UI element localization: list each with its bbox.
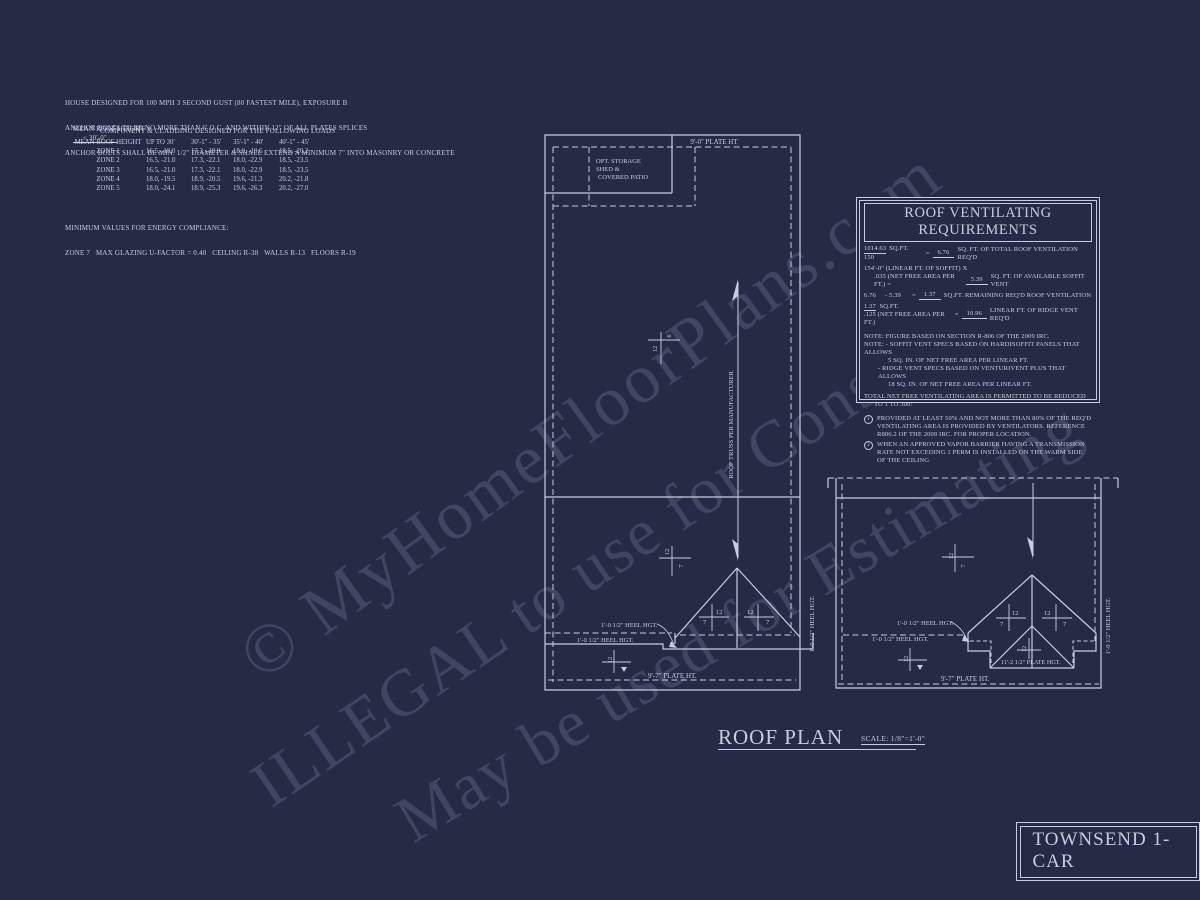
- pitch-12-label: 12: [1012, 610, 1019, 617]
- pitch-12-label: 12: [1044, 610, 1051, 617]
- pitch-7-label: 7: [1063, 621, 1067, 628]
- drawing-title: ROOF PLAN: [718, 725, 843, 750]
- pitch-7-label: 7: [703, 619, 707, 626]
- sheet-title: TOWNSEND 1-CAR: [1020, 826, 1197, 878]
- slope-direction-arrow: [621, 667, 627, 672]
- pitch-7-label: 7: [766, 619, 770, 626]
- title-underline: [718, 749, 916, 750]
- pitch-7-label: 7: [678, 564, 685, 568]
- pitch-12-label: 12: [607, 657, 614, 664]
- main-roof-plan: 9'-0" PLATE HT OPT. STORAGE SHED & COVER…: [545, 135, 816, 690]
- main-plan-dashed-lines: [545, 147, 796, 682]
- slope-direction-arrow: [917, 665, 923, 670]
- heel-hgt-label-rotated: 1'-0 1/2" HEEL HGT.: [809, 595, 816, 652]
- drawing-scale: SCALE: 1/8"=1'-0": [861, 734, 925, 745]
- pitch-12-label: 12: [747, 609, 754, 616]
- roof-truss-note: ROOF TRUSS PER MANUFACTURER: [728, 371, 735, 479]
- pitch-12-label: 12: [652, 346, 659, 353]
- pitch-12-label: 12: [948, 553, 955, 560]
- truss-arrow-down: [732, 539, 738, 561]
- pitch-7-label: 7: [1000, 621, 1004, 628]
- plate-ht-bottom-label: 9'-7" PLATE HT.: [941, 675, 990, 683]
- heel-hgt-label: 1'-0 1/2" HEEL HGT.: [897, 620, 954, 627]
- right-plan-solid-lines: [828, 478, 1118, 688]
- blueprint-sheet: © MyHomeFloorPlans.com ILLEGAL to use fo…: [0, 0, 1200, 900]
- pitch-6-label: 6: [666, 334, 673, 338]
- heel-hgt-label: 1'-0 1/2" HEEL HGT.: [601, 622, 658, 629]
- roof-plan-drawing: 9'-0" PLATE HT OPT. STORAGE SHED & COVER…: [0, 0, 1200, 900]
- pitch-12-label: 12: [1021, 646, 1028, 653]
- right-roof-plan: 12 7 12 7 12 7 12 1'-0 1/2" HEEL HGT. 1'…: [828, 478, 1118, 688]
- opt-shed-label: SHED &: [596, 166, 620, 173]
- sheet-title-block: TOWNSEND 1-CAR: [1016, 822, 1200, 881]
- main-plan-labels: 9'-0" PLATE HT OPT. STORAGE SHED & COVER…: [577, 138, 816, 680]
- pitch-12-label: 12: [903, 656, 910, 663]
- pitch-12-label: 12: [716, 609, 723, 616]
- inner-plate-hgt-label: 11'-2 1/2" PLATE HGT.: [1001, 659, 1061, 666]
- truss-arrow-up: [732, 279, 738, 301]
- right-plan-pitch-marker-lines: [898, 544, 1072, 671]
- plate-ht-top-label: 9'-0" PLATE HT: [690, 138, 738, 146]
- plate-ht-bottom-label: 9'-7" PLATE HT.: [648, 672, 697, 680]
- opt-shed-label: COVERED PATIO: [598, 174, 648, 181]
- opt-shed-label: OPT. STORAGE: [596, 158, 641, 165]
- pitch-7-label: 7: [960, 564, 967, 568]
- heel-hgt-label-rotated: 1'-0 1/2" HEEL HGT.: [1105, 597, 1112, 654]
- heel-hgt-label: 1'-0 1/2" HEEL HGT.: [872, 636, 929, 643]
- main-plan-solid-lines: [545, 135, 813, 690]
- truss-arrow-down: [1027, 537, 1033, 559]
- right-plan-arrows: [917, 537, 1033, 670]
- pitch-12-label: 12: [664, 549, 671, 556]
- right-plan-labels: 12 7 12 7 12 7 12 1'-0 1/2" HEEL HGT. 1'…: [872, 553, 1112, 683]
- heel-hgt-label: 1'-0 1/2" HEEL HGT.: [577, 637, 634, 644]
